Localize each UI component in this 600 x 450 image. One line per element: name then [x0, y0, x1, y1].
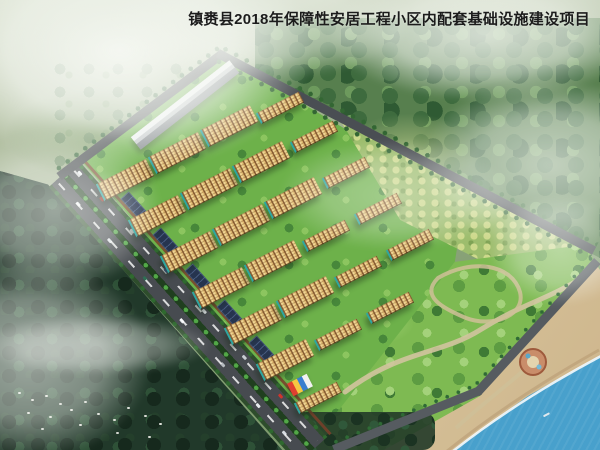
- building-facade: [180, 168, 239, 210]
- mist-cloud: [0, 315, 210, 375]
- project-title: 镇赉县2018年保障性安居工程小区内配套基础设施建设项目: [188, 8, 590, 29]
- residential-tower-building: [276, 276, 340, 330]
- aerial-rendering-scene: 镇赉县2018年保障性安居工程小区内配套基础设施建设项目: [0, 0, 600, 450]
- building-facade: [334, 256, 382, 288]
- building-facade: [366, 292, 414, 324]
- mist-cloud: [0, 130, 160, 290]
- residential-tower-building: [212, 204, 276, 258]
- building-facade: [314, 319, 362, 351]
- residential-tower-building: [180, 168, 244, 222]
- residential-slab-building: [314, 319, 366, 360]
- building-facade: [276, 276, 335, 318]
- mist-cloud: [280, 140, 510, 250]
- building-facade: [212, 204, 271, 246]
- residential-slab-building: [366, 292, 418, 333]
- residential-slab-building: [334, 256, 386, 297]
